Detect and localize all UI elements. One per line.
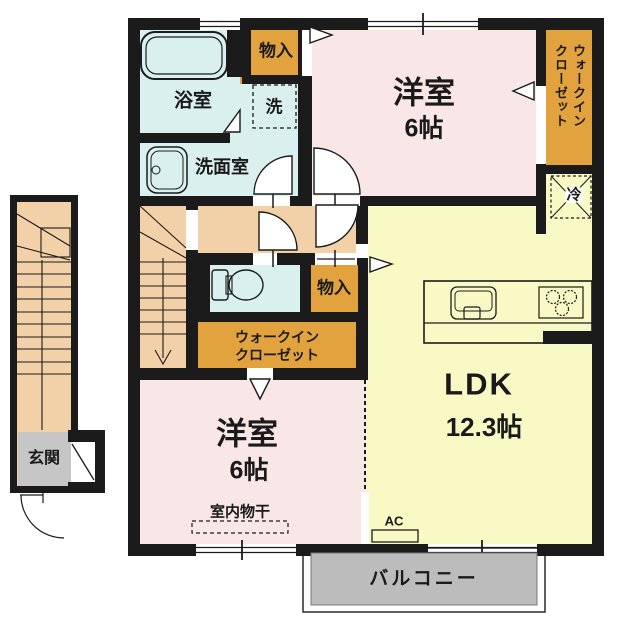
storage-top-label: 物入 [259, 43, 293, 60]
entrance-label: 玄関 [28, 451, 60, 467]
entrance-door-swing [20, 487, 64, 538]
bedroom-top-size: 6帖 [405, 117, 444, 142]
balcony-label: バルコニー [369, 570, 479, 589]
floor-plan-drawing [0, 0, 620, 640]
ldk-size: 12.3帖 [446, 414, 523, 440]
wall-storage-mid-right [358, 258, 368, 320]
wall-bath-right [227, 30, 251, 77]
washer-label: 洗 [266, 99, 283, 116]
bedroom-top-name: 洋室 [393, 78, 455, 109]
window-top-small [200, 18, 240, 30]
wall-washroom-bottom-post [290, 196, 312, 206]
wall-bath-bottom [134, 133, 230, 143]
opening-wic-mid-door [247, 368, 273, 380]
opening-stairs [186, 210, 198, 250]
opening-bedroom-ldk [361, 492, 369, 544]
wall-wic-mid-right [356, 320, 368, 380]
outer-stair-block [10, 195, 105, 538]
drying-rack-label: 室内物干 [210, 505, 270, 520]
ldk-name: LDK [444, 369, 514, 400]
wic-mid-label-line1: ウォークイン [235, 330, 319, 344]
wall-bedroom-top-bottom [360, 196, 540, 206]
wall-left [128, 18, 140, 556]
ac-label: AC [385, 515, 404, 528]
wic-top-label: ウォークインクローゼット [551, 44, 587, 140]
opening-ldk-entry [356, 244, 368, 258]
opening-washroom-door [253, 196, 290, 206]
wall-top [128, 18, 604, 30]
opening-wic-top [536, 86, 546, 164]
wall-wic-mid-top [198, 312, 368, 322]
bathroom-label: 浴室 [174, 92, 212, 111]
washroom-label: 洗面室 [195, 158, 249, 176]
wic-mid-label-line2: クローゼット [235, 348, 319, 362]
storage-mid-label: 物入 [317, 280, 351, 297]
bedroom-bottom-name: 洋室 [216, 419, 278, 450]
wall-toilet-right [300, 257, 311, 320]
wall-right [592, 18, 604, 556]
fridge-label: 冷 [565, 188, 582, 203]
floor-plan: 浴室 洗 物入 洗面室 洋室 6帖 ウォークインクローゼット 冷 物入 ウォーク… [0, 0, 620, 640]
bedroom-bottom-size: 6帖 [230, 459, 269, 484]
wall-toilet-left [198, 265, 210, 320]
wall-wic-top-bottom [546, 165, 592, 174]
